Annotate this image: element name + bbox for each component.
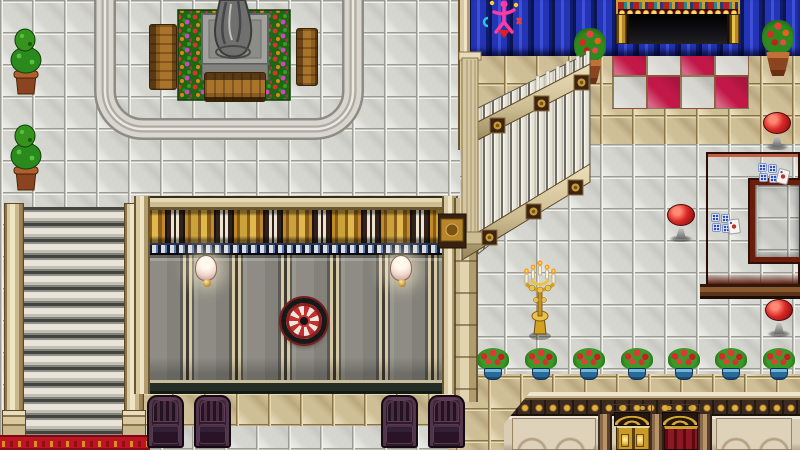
table-skirt xyxy=(700,284,800,299)
playing-card xyxy=(727,218,741,235)
grand-staircase[interactable] xyxy=(438,44,596,262)
stairs-down[interactable] xyxy=(4,203,144,437)
door-pediment-fan xyxy=(614,412,650,426)
stair-pillar-left xyxy=(4,203,24,437)
entrance-pillar xyxy=(598,414,612,450)
terracotta-flower-pot xyxy=(762,20,794,76)
wall-base-band xyxy=(134,380,458,394)
red-carpet xyxy=(0,435,150,450)
game-map xyxy=(0,0,800,450)
stair-steps[interactable] xyxy=(22,207,126,437)
wall-gold-frieze xyxy=(134,210,458,243)
marquee-opening[interactable] xyxy=(627,14,729,44)
wall-lamp xyxy=(390,255,412,281)
red-stool[interactable] xyxy=(764,299,794,337)
entrance-trim xyxy=(504,392,800,400)
table-recess xyxy=(750,180,800,262)
marquee-post-left xyxy=(616,14,627,44)
dartboard[interactable] xyxy=(281,298,327,344)
topiary-plant xyxy=(6,122,46,192)
candelabra xyxy=(522,256,558,342)
bench-right[interactable] xyxy=(296,28,318,86)
armchair[interactable] xyxy=(194,395,231,448)
door-window xyxy=(621,434,629,447)
neon-figure-sign xyxy=(480,0,528,40)
bench-front[interactable] xyxy=(204,72,266,102)
red-door[interactable] xyxy=(664,426,698,450)
red-stool[interactable] xyxy=(666,204,696,242)
casino-wall xyxy=(134,196,458,394)
door-pediment xyxy=(660,404,700,412)
entrance-pillar xyxy=(698,414,712,450)
marble-arch-panel xyxy=(716,418,792,450)
wall-edge-column-left xyxy=(134,196,150,394)
armchair[interactable] xyxy=(147,395,184,448)
topiary-plant xyxy=(6,26,46,96)
marquee-post-right xyxy=(729,14,740,44)
door-pediment-fan xyxy=(662,412,698,426)
bench-left[interactable] xyxy=(149,24,177,90)
wall-top-trim xyxy=(134,196,458,210)
armchair[interactable] xyxy=(428,395,465,448)
door-window xyxy=(636,434,644,447)
blue-flower-pot xyxy=(714,348,748,380)
red-stool[interactable] xyxy=(762,112,792,150)
blue-flower-pot xyxy=(620,348,654,380)
door-pediment xyxy=(612,404,652,412)
entrance-hall-wall xyxy=(504,392,800,450)
wall-lamp xyxy=(195,255,217,281)
marble-arch-panel xyxy=(512,418,596,450)
wall-tick-band xyxy=(134,243,458,255)
blue-flower-pot xyxy=(476,348,510,380)
blue-flower-pot xyxy=(572,348,606,380)
blue-flower-pot xyxy=(524,348,558,380)
gold-door[interactable] xyxy=(616,426,650,450)
armchair[interactable] xyxy=(381,395,418,448)
blue-flower-pot xyxy=(762,348,796,380)
blue-flower-pot xyxy=(667,348,701,380)
statue-sprite xyxy=(215,0,251,58)
